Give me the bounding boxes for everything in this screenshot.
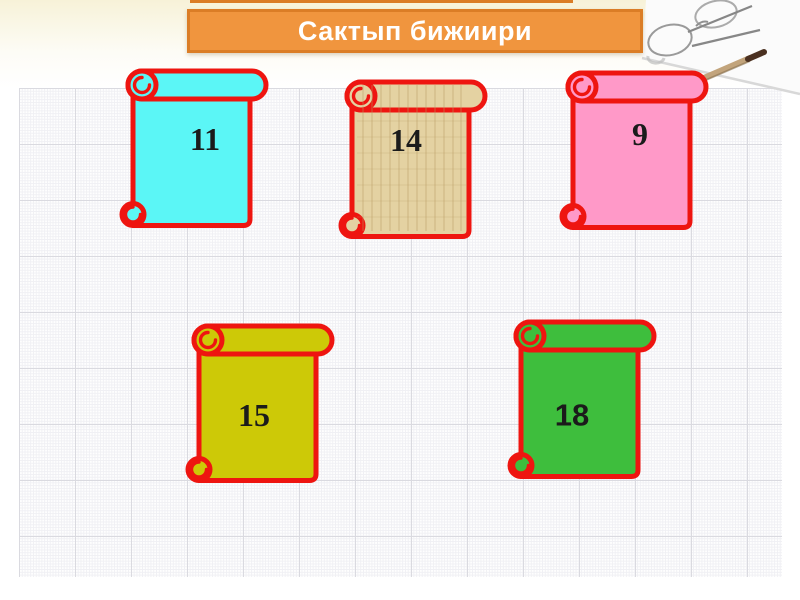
title-banner: Сактып бижиири [187, 9, 643, 53]
scroll-number-label: 18 [555, 400, 589, 431]
scroll-shape-11[interactable]: 11 [118, 62, 270, 234]
slide-title: Сактып бижиири [298, 16, 532, 47]
scroll-number-label: 15 [238, 399, 270, 431]
scroll-shape-9[interactable]: 9 [558, 64, 710, 236]
scroll-shape-14[interactable]: 14 [337, 73, 489, 245]
scroll-number-label: 14 [390, 124, 422, 156]
scroll-number-label: 9 [632, 118, 648, 150]
scroll-shape-15[interactable]: 15 [184, 317, 336, 489]
scroll-number-label: 11 [190, 123, 220, 155]
top-accent-line [190, 0, 573, 3]
scroll-graphic [337, 73, 489, 245]
scroll-shape-18[interactable]: 18 [506, 313, 658, 485]
presentation-slide: Сактып бижиири 11 14 [0, 0, 800, 600]
